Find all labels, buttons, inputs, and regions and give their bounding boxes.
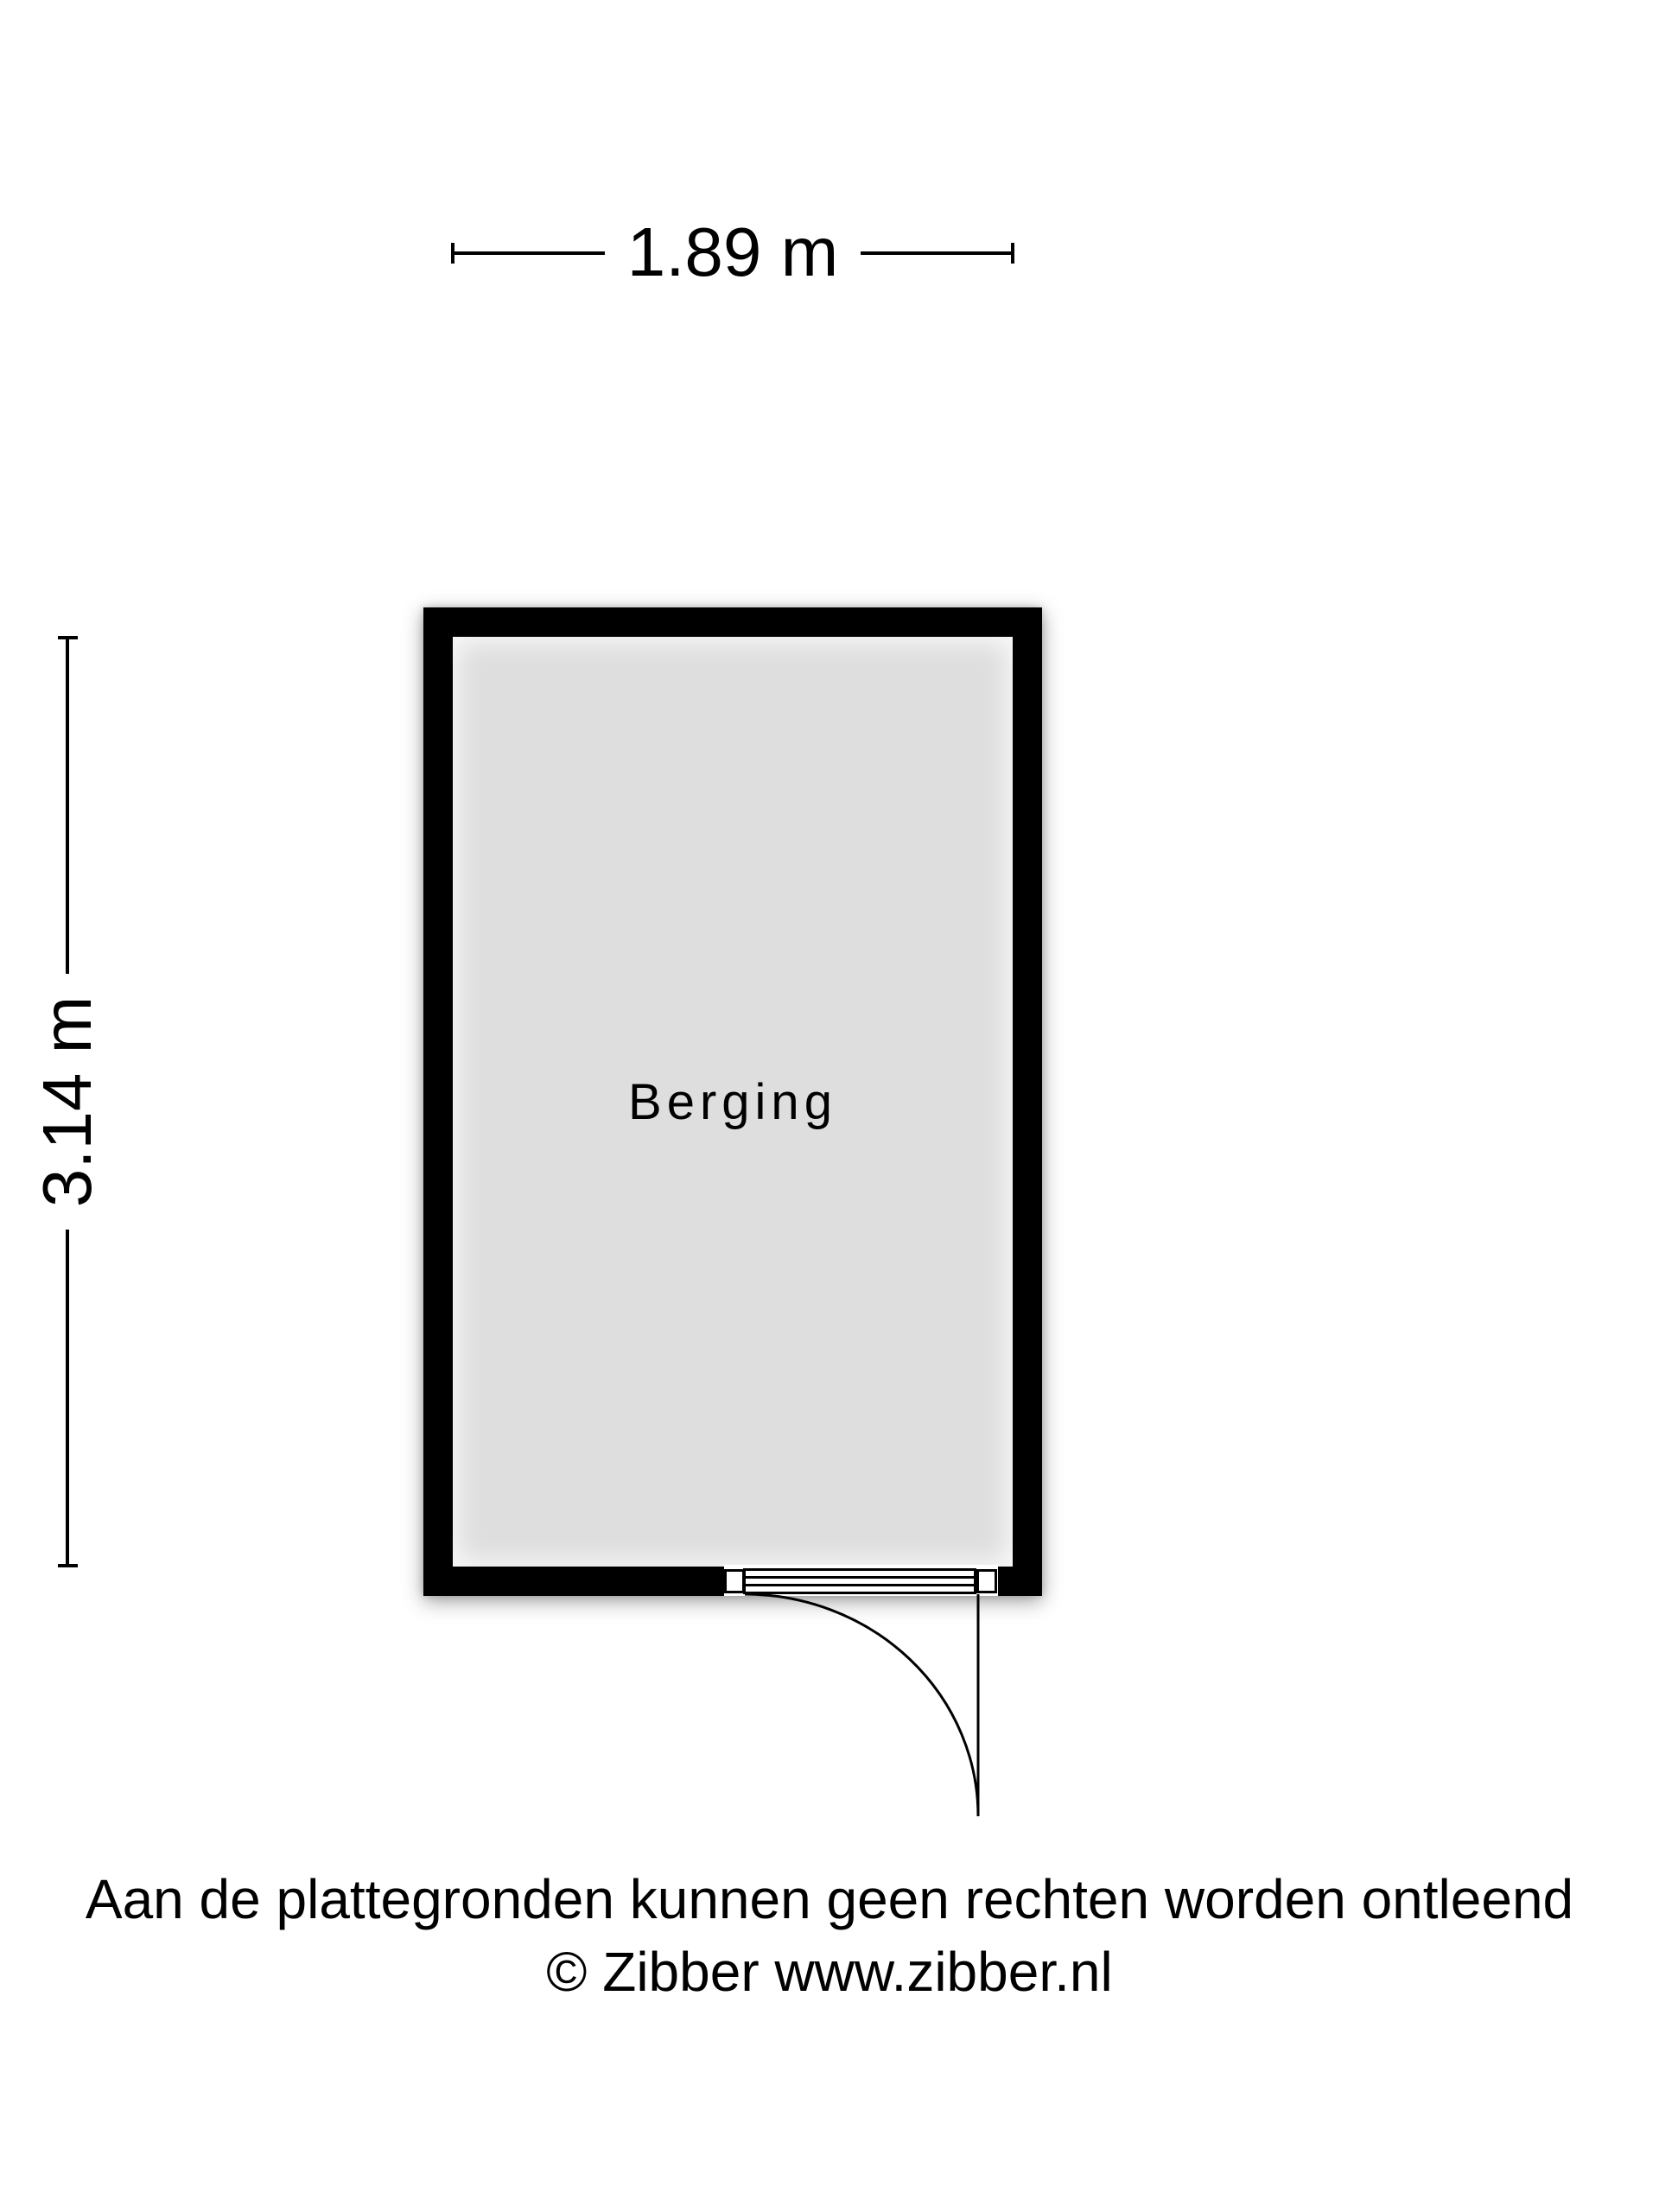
floorplan-canvas: 1.89 m 3.14 m Berging Aan de plattegrond… [0, 0, 1659, 2212]
width-dimension-label: 1.89 m [605, 207, 861, 297]
height-dimension-tick-bottom [58, 1564, 78, 1567]
door-swing [739, 1590, 989, 1827]
width-dimension: 1.89 m [453, 207, 1013, 297]
height-dimension-tick-top [58, 636, 78, 639]
copyright-text: © Zibber www.zibber.nl [0, 1935, 1659, 2008]
door-swing-arc [745, 1594, 978, 1816]
disclaimer-text: Aan de plattegronden kunnen geen rechten… [0, 1863, 1659, 1935]
room-walls: Berging [423, 607, 1042, 1596]
footer: Aan de plattegronden kunnen geen rechten… [0, 1863, 1659, 2008]
height-dimension: 3.14 m [20, 929, 115, 1274]
room-label: Berging [453, 637, 1013, 1567]
height-dimension-label: 3.14 m [28, 974, 107, 1230]
room-floor: Berging [453, 637, 1013, 1567]
